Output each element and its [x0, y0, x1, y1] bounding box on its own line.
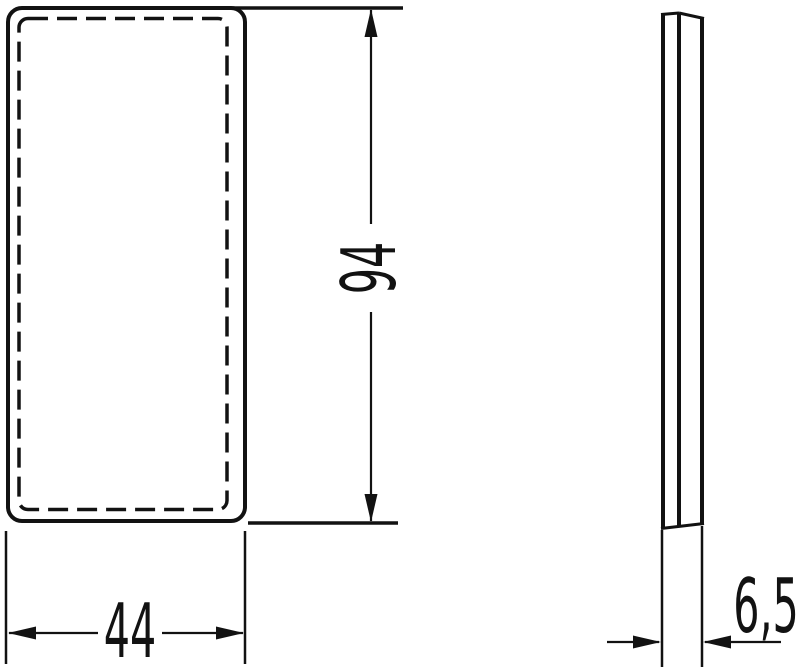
front-view-hidden-outline-dashed [19, 19, 227, 510]
width-arrow-left-icon [8, 627, 36, 640]
height-dimension-label: 94 [327, 242, 414, 294]
front-view-outer-outline [8, 8, 245, 521]
depth-arrow-right-icon [633, 636, 661, 649]
depth-dimension: 6,5 [607, 526, 799, 667]
height-arrow-up-icon [365, 9, 378, 37]
drawing-canvas: 44 94 [0, 0, 800, 672]
front-view [8, 8, 245, 521]
depth-arrow-left-icon [703, 636, 731, 649]
width-dimension-label: 44 [104, 589, 156, 672]
technical-drawing-page: 44 94 [0, 0, 800, 672]
width-dimension: 44 [6, 531, 245, 672]
drawing-root: 44 94 [6, 8, 799, 672]
height-dimension: 94 [228, 8, 414, 523]
width-arrow-right-icon [216, 627, 244, 640]
depth-dimension-label: 6,5 [733, 564, 799, 651]
height-arrow-down-icon [365, 494, 378, 522]
side-view-top-edge-right [679, 13, 704, 19]
side-view-bottom-edge [661, 524, 704, 529]
side-view-top-edge-left [661, 13, 679, 15]
side-view [661, 13, 704, 529]
